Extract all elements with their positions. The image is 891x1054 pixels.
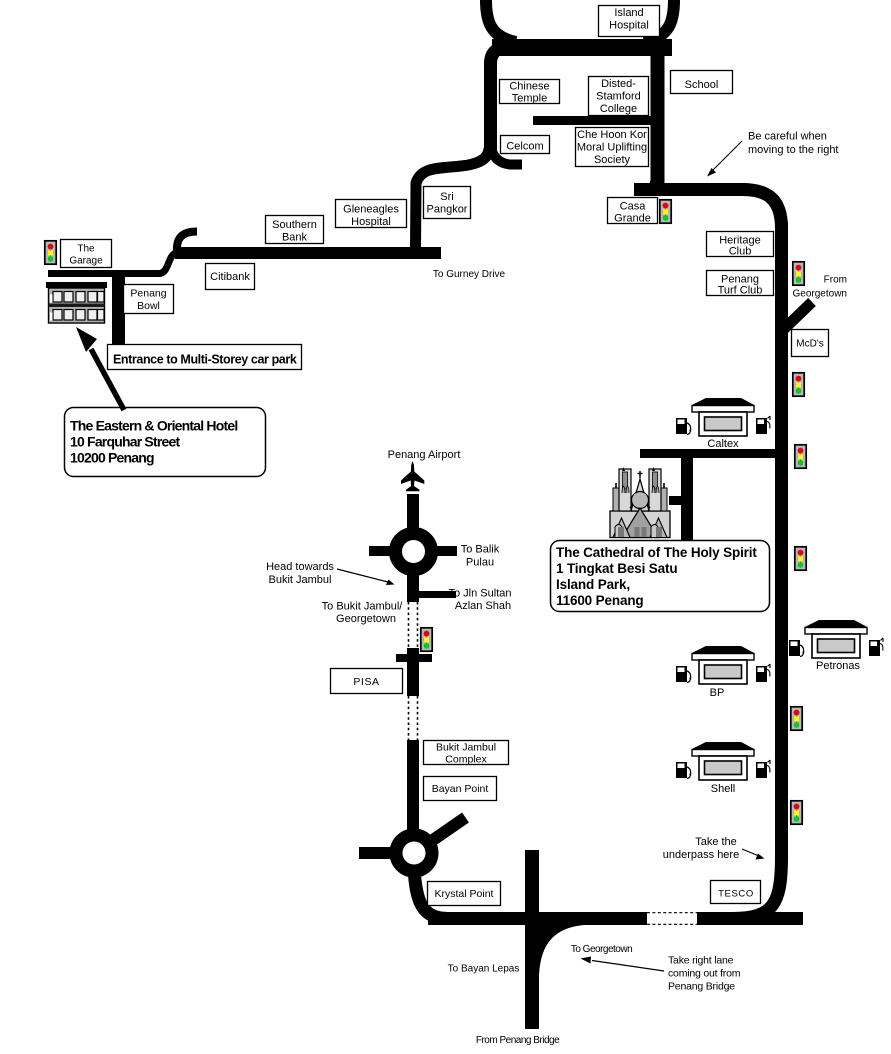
- svg-text:Penang: Penang: [130, 288, 166, 300]
- svg-text:Georgetown: Georgetown: [793, 289, 847, 300]
- svg-text:Bukit Jambul: Bukit Jambul: [436, 742, 496, 754]
- svg-text:Turf Club: Turf Club: [718, 285, 763, 297]
- svg-text:From Penang Bridge: From Penang Bridge: [476, 1035, 560, 1046]
- svg-text:Disted-: Disted-: [601, 78, 636, 90]
- svg-text:Petronas: Petronas: [816, 660, 861, 672]
- svg-text:Society: Society: [594, 154, 631, 166]
- svg-text:Southern: Southern: [272, 219, 317, 231]
- svg-text:Krystal Point: Krystal Point: [435, 888, 494, 900]
- svg-text:Citibank: Citibank: [210, 271, 250, 283]
- svg-text:Shell: Shell: [711, 783, 735, 795]
- svg-text:1 Tingkat Besi Satu: 1 Tingkat Besi Satu: [556, 561, 677, 576]
- svg-text:Grande: Grande: [614, 213, 651, 225]
- svg-text:BP: BP: [710, 687, 725, 699]
- svg-text:To Jln Sultan: To Jln Sultan: [449, 588, 512, 600]
- svg-text:underpass here: underpass here: [663, 849, 739, 861]
- svg-text:Complex: Complex: [445, 754, 487, 766]
- svg-text:Penang Airport: Penang Airport: [388, 449, 461, 461]
- svg-text:Entrance to Multi-Storey car p: Entrance to Multi-Storey car park: [113, 353, 297, 367]
- svg-text:Che Hoon Kor: Che Hoon Kor: [577, 129, 647, 141]
- svg-text:School: School: [685, 79, 719, 91]
- svg-text:Take right lane: Take right lane: [668, 955, 734, 967]
- svg-text:Be careful when: Be careful when: [748, 131, 827, 143]
- svg-text:Caltex: Caltex: [707, 438, 739, 450]
- svg-text:Head towards: Head towards: [266, 561, 334, 573]
- svg-text:To Georgetown: To Georgetown: [571, 944, 632, 955]
- svg-text:Penang Bridge: Penang Bridge: [668, 981, 735, 993]
- svg-text:Gleneagles: Gleneagles: [343, 204, 399, 216]
- svg-text:Temple: Temple: [512, 93, 547, 105]
- svg-text:To Bayan Lepas: To Bayan Lepas: [448, 964, 520, 975]
- svg-text:PISA: PISA: [353, 676, 379, 688]
- svg-text:Celcom: Celcom: [506, 141, 543, 153]
- svg-text:The: The: [77, 244, 95, 255]
- svg-text:Hospital: Hospital: [609, 20, 649, 32]
- svg-text:Azlan Shah: Azlan Shah: [455, 600, 511, 612]
- svg-text:Take the: Take the: [695, 836, 737, 848]
- svg-text:TESCO: TESCO: [718, 889, 754, 900]
- svg-text:Bowl: Bowl: [137, 300, 160, 312]
- svg-text:11600 Penang: 11600 Penang: [556, 593, 644, 608]
- svg-text:Chinese: Chinese: [509, 81, 549, 93]
- svg-text:Pulau: Pulau: [466, 557, 494, 569]
- svg-text:Garage: Garage: [69, 256, 103, 267]
- svg-text:To Gurney Drive: To Gurney Drive: [433, 269, 506, 280]
- svg-text:Island Park,: Island Park,: [556, 577, 630, 592]
- svg-text:To Balik: To Balik: [461, 544, 500, 556]
- svg-text:From: From: [824, 275, 847, 286]
- svg-text:Bukit Jambul: Bukit Jambul: [269, 574, 332, 586]
- svg-text:moving to the right: moving to the right: [748, 144, 839, 156]
- svg-text:The Eastern & Oriental Hotel: The Eastern & Oriental Hotel: [70, 418, 237, 434]
- svg-text:Club: Club: [729, 246, 752, 258]
- svg-text:coming out from: coming out from: [668, 968, 741, 980]
- svg-text:To Bukit Jambul/: To Bukit Jambul/: [322, 601, 404, 613]
- svg-text:Pangkor: Pangkor: [427, 204, 468, 216]
- svg-text:McD's: McD's: [796, 339, 823, 350]
- svg-text:Casa: Casa: [620, 201, 647, 213]
- svg-text:College: College: [600, 103, 637, 115]
- svg-text:Bayan Point: Bayan Point: [432, 783, 489, 795]
- svg-text:10200 Penang: 10200 Penang: [70, 450, 154, 466]
- svg-text:10 Farquhar Street: 10 Farquhar Street: [70, 434, 180, 450]
- svg-text:Bank: Bank: [282, 232, 308, 244]
- svg-text:Sri: Sri: [440, 191, 453, 203]
- svg-text:Island: Island: [614, 7, 643, 19]
- svg-text:Hospital: Hospital: [351, 216, 391, 228]
- svg-text:Stamford: Stamford: [596, 91, 641, 103]
- svg-text:Moral Uplifting: Moral Uplifting: [577, 142, 647, 154]
- svg-text:The Cathedral of The Holy Spir: The Cathedral of The Holy Spirit: [556, 545, 757, 560]
- svg-text:Georgetown: Georgetown: [336, 613, 396, 625]
